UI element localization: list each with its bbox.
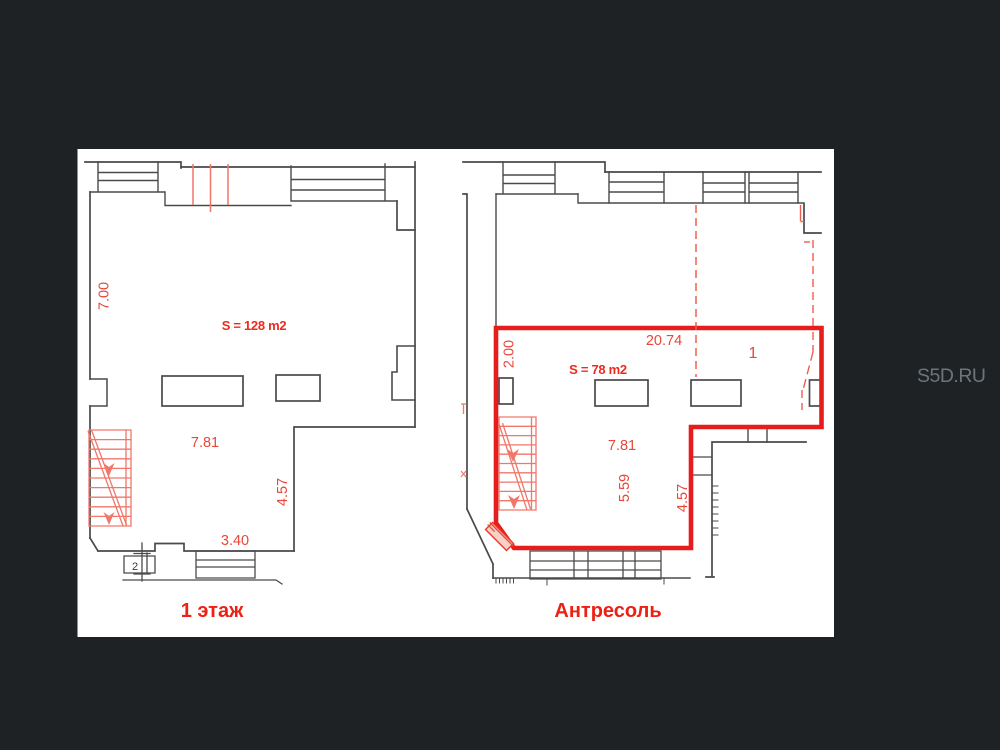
svg-text:1: 1: [749, 345, 758, 362]
svg-text:4.57: 4.57: [675, 484, 691, 512]
svg-text:7.00: 7.00: [97, 282, 113, 310]
svg-text:7.81: 7.81: [608, 438, 636, 454]
svg-text:5.59: 5.59: [617, 474, 633, 502]
svg-text:S = 78 m2: S = 78 m2: [569, 362, 627, 377]
svg-text:4.57: 4.57: [275, 478, 291, 506]
svg-text:Антресоль: Антресоль: [554, 600, 661, 622]
svg-text:20.74: 20.74: [646, 333, 682, 349]
svg-text:7.81: 7.81: [191, 435, 219, 451]
svg-text:2: 2: [132, 561, 138, 573]
svg-text:2.00: 2.00: [502, 340, 518, 368]
svg-text:S5D.RU: S5D.RU: [917, 365, 986, 387]
svg-text:3.40: 3.40: [221, 533, 249, 549]
svg-text:1 этаж: 1 этаж: [181, 600, 244, 622]
svg-text:S = 128 m2: S = 128 m2: [222, 318, 287, 333]
